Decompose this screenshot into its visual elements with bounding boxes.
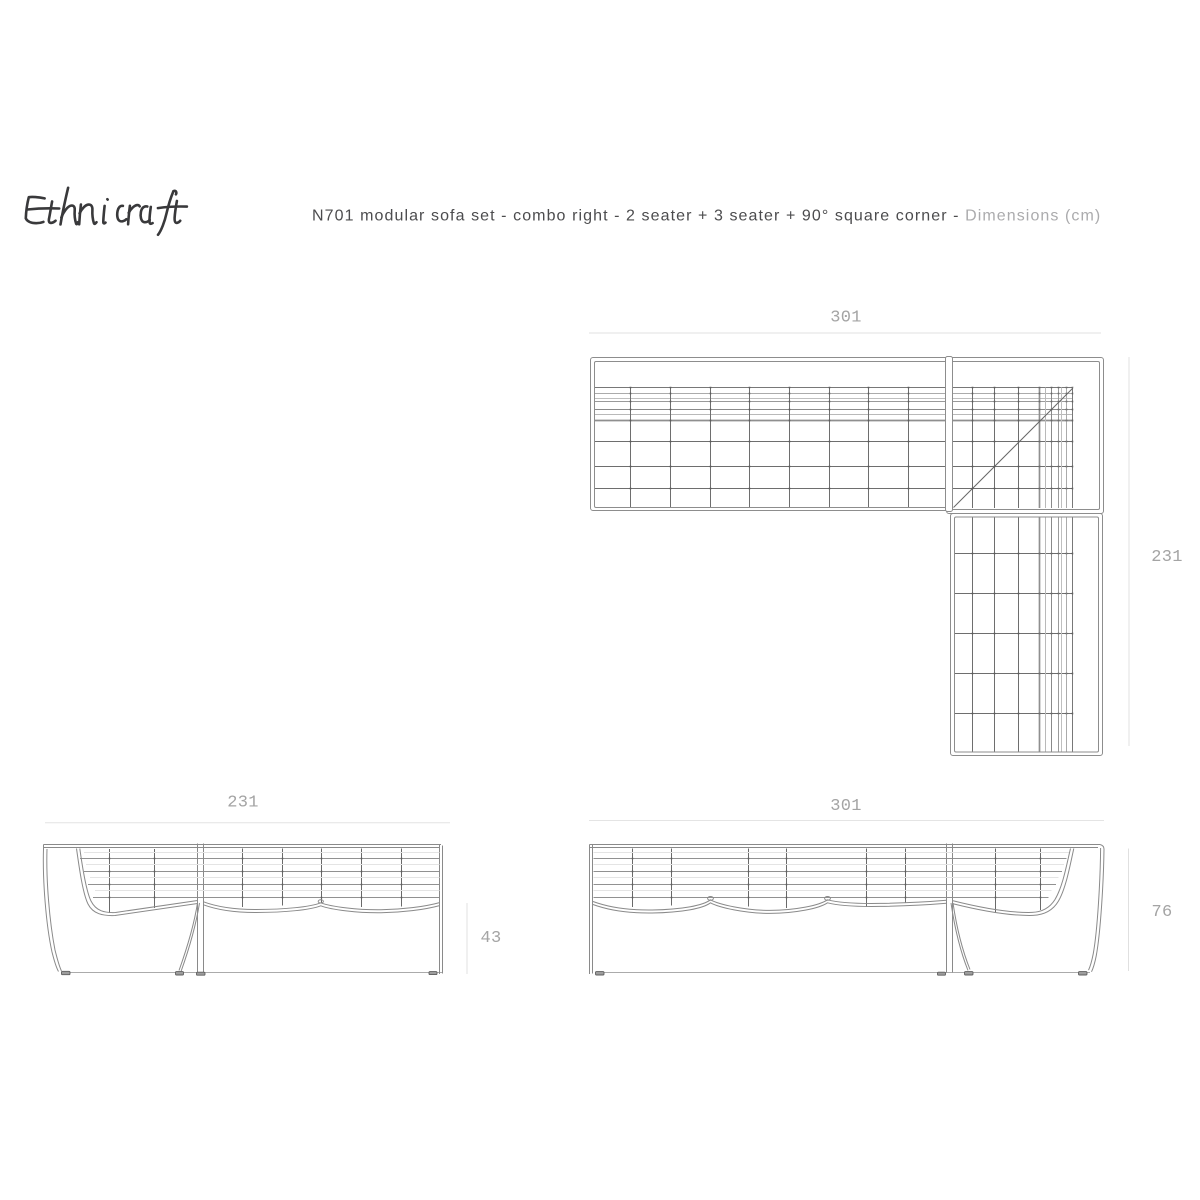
svg-text:231: 231	[227, 794, 259, 813]
svg-text:76: 76	[1151, 903, 1172, 922]
svg-text:43: 43	[480, 929, 501, 948]
svg-text:301: 301	[830, 309, 862, 328]
svg-text:N701 modular sofa set - combo: N701 modular sofa set - combo right - 2 …	[312, 208, 1101, 225]
svg-text:231: 231	[1151, 548, 1183, 567]
svg-text:301: 301	[830, 797, 862, 816]
